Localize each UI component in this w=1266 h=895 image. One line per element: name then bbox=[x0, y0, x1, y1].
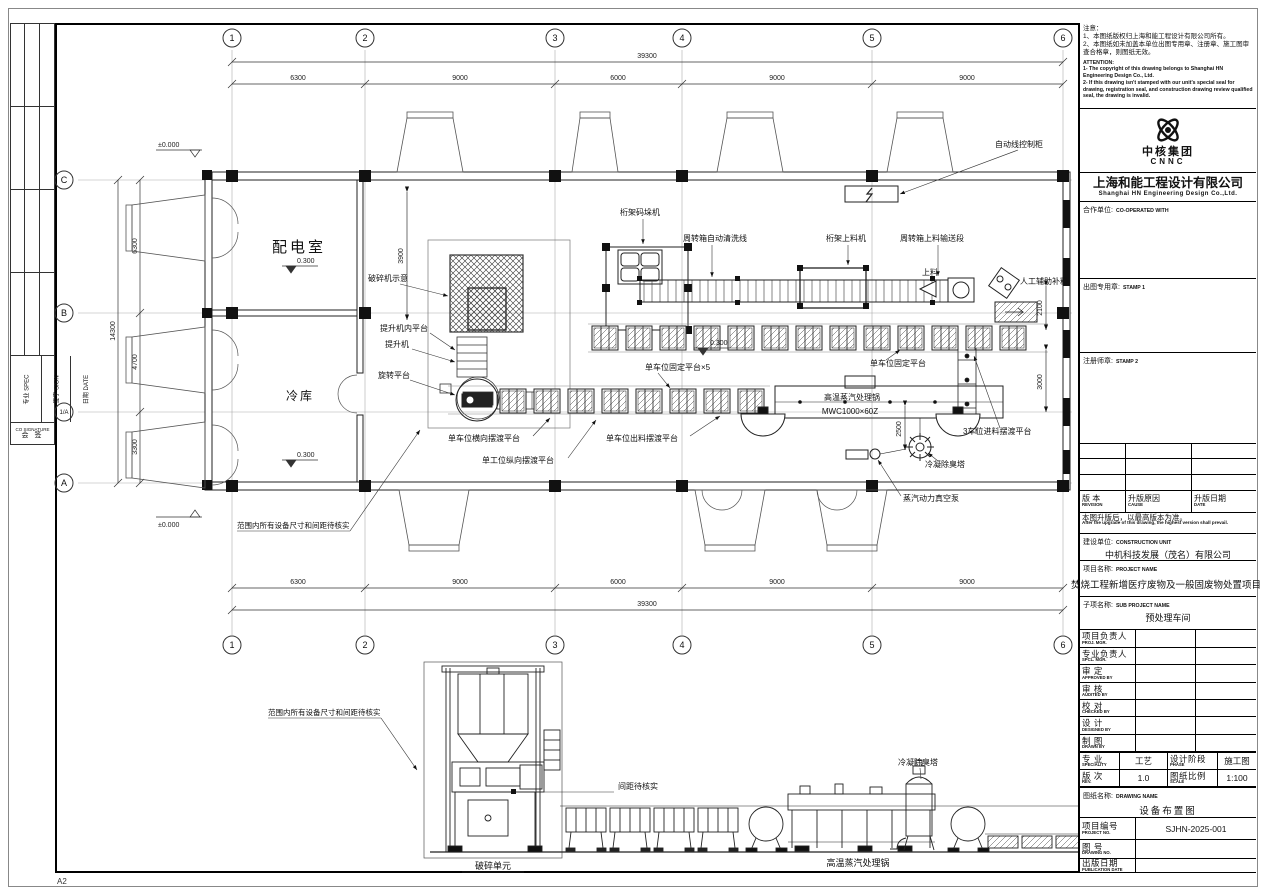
stamp1-label-cn: 出图专用章: bbox=[1083, 282, 1120, 292]
signature-header-row: 专业 SPEC 签字 SIGN 日期 DATE bbox=[11, 356, 54, 423]
level-text: ±0.000 bbox=[158, 142, 179, 149]
level-text: 0.300 bbox=[710, 340, 728, 347]
personnel-row-label: 专业负责人SPCL. MGR. bbox=[1080, 648, 1136, 665]
level-mark-cold: 0.300 bbox=[282, 452, 318, 467]
manual-refill-station bbox=[989, 268, 1037, 322]
lateral-ferry-turntable bbox=[456, 379, 498, 421]
grid-bubbles-left: C B 1/A A bbox=[55, 171, 73, 492]
label-truss-loader: 桁架上料机 bbox=[826, 233, 866, 243]
label-feed-ferry-3: 3车位进料摆渡平台 bbox=[963, 426, 1031, 436]
notes-cn-line2: 2、本图纸如未加盖本单位出图专用章、注册章、施工图审查合格章，则图纸无效。 bbox=[1083, 41, 1253, 57]
label-verify-note: 范围内所有设备尺寸和间距待核实 bbox=[237, 520, 350, 530]
personnel-row-label: 制 图DRAWN BY bbox=[1080, 735, 1136, 752]
label-rotating-platform: 旋转平台 bbox=[378, 370, 410, 380]
id-table: 项目编号PROJECT NO. SJHN-2025-001 图 号DRAWING… bbox=[1080, 818, 1256, 873]
label-elev-condenser: 冷凝除臭塔 bbox=[898, 757, 938, 767]
label-spacing-note: 间距待核实 bbox=[618, 781, 658, 791]
drawing-canvas: 1 2 3 4 5 6 1 2 3 4 5 6 C B 1/A A bbox=[0, 0, 1266, 895]
grid-bubble-label: 2 bbox=[362, 33, 367, 43]
coop-label-cn: 合作单位: bbox=[1083, 205, 1113, 215]
drawing-name-section: 图纸名称: DRAWING NAME 设备布置图 bbox=[1080, 788, 1256, 818]
dim-text: 14300 bbox=[110, 321, 117, 341]
label-elev-steam-pot: 高温蒸汽处理锅 bbox=[826, 857, 889, 868]
date-header: 日期 DATE bbox=[81, 374, 90, 403]
cnnc-logo-icon bbox=[1151, 114, 1185, 146]
dim-text: 3300 bbox=[132, 439, 139, 455]
personnel-row-label: 审 定APPROVED BY bbox=[1080, 665, 1136, 682]
grid-bubble-label: A bbox=[61, 478, 67, 488]
dim-text: 2100 bbox=[1037, 300, 1044, 316]
notes-en-line1: 1- The copyright of this drawing belongs… bbox=[1083, 66, 1253, 80]
dim-text: 9000 bbox=[452, 75, 468, 82]
project-no-value: SJHN-2025-001 bbox=[1136, 818, 1256, 840]
rev-value: 1.0 bbox=[1120, 770, 1168, 787]
speciality-label: 专 业SPECIALITY bbox=[1080, 753, 1120, 770]
revision-table: 版 本 REVISION 升版原因 CAUSE 升版日期 DATE bbox=[1080, 444, 1256, 513]
drawing-name-label-cn: 图纸名称: bbox=[1083, 791, 1113, 801]
notes-en-line2: 2- If this drawing isn't stamped with ou… bbox=[1083, 80, 1253, 100]
subproject-label-cn: 子项名称: bbox=[1083, 600, 1113, 610]
grid-bubbles-bottom: 1 2 3 4 5 6 bbox=[223, 636, 1072, 654]
conveyor-row-outfeed bbox=[448, 386, 770, 414]
elevation-right-platform bbox=[985, 834, 1088, 848]
grid-bubbles-top: 1 2 3 4 5 6 bbox=[223, 29, 1072, 47]
grid-bubble-label: 5 bbox=[869, 33, 874, 43]
stamp1-label-en: STAMP 1 bbox=[1123, 285, 1145, 291]
dimensions-bottom: 6300 9000 6000 9000 9000 39300 bbox=[228, 579, 1067, 614]
phase-value: 施工图 bbox=[1218, 753, 1256, 770]
drawing-sheet: 1 2 3 4 5 6 1 2 3 4 5 6 C B 1/A A bbox=[0, 0, 1266, 895]
grid-bubble-label: 3 bbox=[552, 33, 557, 43]
logo-en: CNNC bbox=[1150, 158, 1185, 167]
elevation-view bbox=[424, 662, 1090, 858]
dim-text: 39300 bbox=[637, 601, 657, 608]
level-text: ±0.000 bbox=[158, 522, 179, 529]
personnel-row-label: 设 计DESIGNED BY bbox=[1080, 717, 1136, 734]
notes-cn-title: 注意： bbox=[1083, 25, 1253, 33]
subproject-value: 预处理车间 bbox=[1080, 611, 1256, 624]
elevation-sphere-left bbox=[746, 807, 787, 852]
dimensions-top: 6300 9000 6000 9000 9000 39300 bbox=[228, 53, 1067, 88]
notes-en-title: ATTENTION: bbox=[1083, 60, 1253, 67]
logo-section: 中核集团 CNNC bbox=[1080, 109, 1256, 173]
date-en: DATE bbox=[1194, 503, 1256, 507]
dim-text: 9000 bbox=[959, 579, 975, 586]
signature-empty-row bbox=[11, 24, 54, 107]
control-cabinet bbox=[845, 186, 898, 202]
grid-bubble-label: B bbox=[61, 308, 67, 318]
dim-text: 9000 bbox=[769, 75, 785, 82]
label-lateral-ferry: 单车位横向摆渡平台 bbox=[448, 433, 520, 443]
coop-label-en: CO-OPERATED WITH bbox=[1116, 208, 1169, 214]
room-power-distribution: 配电室 bbox=[272, 239, 326, 256]
label-crushing-unit: 破碎单元 bbox=[475, 860, 511, 871]
dim-text: 6300 bbox=[290, 579, 306, 586]
grid-bubble-label: C bbox=[61, 175, 68, 185]
project-no-label: 项目编号PROJECT NO. bbox=[1080, 818, 1136, 840]
drawing-no-value bbox=[1136, 840, 1256, 859]
dim-text: 4700 bbox=[132, 354, 139, 370]
grid-bubble-label: 6 bbox=[1060, 33, 1065, 43]
grid-bubble-label: 4 bbox=[679, 640, 684, 650]
dimensions-left: 6300 4700 3300 14300 bbox=[110, 176, 144, 487]
level-text: 0.300 bbox=[297, 258, 315, 265]
project-label-cn: 项目名称: bbox=[1083, 564, 1113, 574]
personnel-table: 项目负责人PROJ. MGR. 专业负责人SPCL. MGR. 审 定APPRO… bbox=[1080, 630, 1256, 753]
elevation-condenser-tower bbox=[890, 760, 934, 850]
grid-bubble-label: 1 bbox=[229, 33, 234, 43]
label-vacuum-pump: 蒸汽动力真空泵 bbox=[903, 493, 959, 503]
dim-text: 3000 bbox=[1037, 374, 1044, 390]
label-hoist-platform: 提升机内平台 bbox=[380, 323, 428, 333]
co-signature-cn: 会 签 bbox=[22, 432, 44, 439]
upgrade-note-section: 本图升版后，以最高版本为准。 After the upgrade of this… bbox=[1080, 513, 1256, 534]
scale-value: 1:100 bbox=[1218, 770, 1256, 787]
drawing-name-value: 设备布置图 bbox=[1080, 803, 1256, 817]
grid-bubble-label: 6 bbox=[1060, 640, 1065, 650]
stamp2-label-en: STAMP 2 bbox=[1116, 359, 1138, 365]
dim-text: 6300 bbox=[290, 75, 306, 82]
grid-bubble-label: 1 bbox=[229, 640, 234, 650]
company-section: 上海和能工程设计有限公司 Shanghai HN Engineering Des… bbox=[1080, 173, 1256, 202]
label-truss-palletizer: 桁架码垛机 bbox=[620, 207, 660, 217]
co-operated-section: 合作单位: CO-OPERATED WITH bbox=[1080, 202, 1256, 279]
sheet-format-label: A2 bbox=[57, 877, 67, 886]
conveyor-row-fixed-platforms bbox=[588, 324, 1048, 352]
label-fixed-platform-x5: 单车位固定平台×5 bbox=[645, 362, 711, 372]
pub-date-value bbox=[1136, 859, 1256, 873]
label-control-cabinet: 自动线控制柜 bbox=[995, 139, 1043, 149]
dim-text: 9000 bbox=[769, 579, 785, 586]
level-mark-zero-bottom: ±0.000 bbox=[156, 510, 202, 529]
cause-en: CAUSE bbox=[1128, 503, 1191, 507]
construction-unit-section: 建设单位: CONSTRUCTION UNIT 中机科技发展（茂名）有限公司 bbox=[1080, 534, 1256, 561]
signature-empty-row bbox=[11, 107, 54, 190]
company-name-en: Shanghai HN Engineering Design Co.,Ltd. bbox=[1099, 191, 1238, 198]
dim-text: 9000 bbox=[959, 75, 975, 82]
label-feeding: 上料 bbox=[922, 267, 938, 277]
label-discharge-ferry: 单车位出料摆渡平台 bbox=[606, 433, 678, 443]
construction-label-en: CONSTRUCTION UNIT bbox=[1116, 540, 1171, 546]
dim-text: 39300 bbox=[637, 53, 657, 60]
spec-header: 专业 SPEC bbox=[22, 374, 31, 404]
drawing-no-label: 图 号DRAWING NO. bbox=[1080, 840, 1136, 859]
rev-en: REVISION bbox=[1082, 503, 1125, 507]
level-mark-zero-top: ±0.000 bbox=[156, 142, 202, 157]
project-name-value: 焚烧工程新增医疗废物及一般固废物处置项目 bbox=[1071, 577, 1256, 591]
grid-bubble-label: 2 bbox=[362, 640, 367, 650]
level-mark-power: 0.300 bbox=[282, 258, 318, 273]
construction-unit-value: 中机科技发展（茂名）有限公司 bbox=[1080, 548, 1256, 561]
dim-text: 6000 bbox=[610, 579, 626, 586]
label-manual-refill: 人工辅助补料 bbox=[1020, 276, 1068, 286]
pub-date-label: 出版日期PUBLICATION DATE bbox=[1080, 859, 1136, 873]
drawing-name-label-en: DRAWING NAME bbox=[1116, 794, 1158, 800]
elevation-steam-pot bbox=[788, 784, 935, 851]
level-text: 0.300 bbox=[297, 452, 315, 459]
personnel-row-label: 项目负责人PROJ. MGR. bbox=[1080, 630, 1136, 647]
project-name-section: 项目名称: PROJECT NAME 焚烧工程新增医疗废物及一般固废物处置项目 bbox=[1080, 561, 1256, 598]
grid-bubble-label: 4 bbox=[679, 33, 684, 43]
construction-label-cn: 建设单位: bbox=[1083, 537, 1113, 547]
upgrade-note-en: After the upgrade of this drawing, the h… bbox=[1082, 521, 1254, 526]
dim-text: 9000 bbox=[452, 579, 468, 586]
dim-text: 2500 bbox=[896, 421, 903, 437]
signature-strip: 专业 SPEC 签字 SIGN 日期 DATE CO SIGNATURE 会 签 bbox=[10, 23, 55, 445]
stamp2-section: 注册师章: STAMP 2 bbox=[1080, 353, 1256, 444]
scale-label: 图纸比例SCALE bbox=[1168, 770, 1218, 787]
project-label-en: PROJECT NAME bbox=[1116, 567, 1157, 573]
speciality-table: 专 业SPECIALITY 工艺 设计阶段PHASE 施工图 版 次REV. 1… bbox=[1080, 753, 1256, 788]
label-crusher-schematic: 破碎机示意 bbox=[368, 273, 408, 283]
label-elev-verify-note: 范围内所有设备尺寸和间距待核实 bbox=[268, 707, 381, 717]
label-feed-conveyor: 周转箱上料输送段 bbox=[900, 233, 964, 243]
elevation-sphere-right bbox=[948, 807, 989, 852]
grid-bubble-label: 3 bbox=[552, 640, 557, 650]
phase-label: 设计阶段PHASE bbox=[1168, 753, 1218, 770]
dim-text: 6000 bbox=[610, 75, 626, 82]
vacuum-pump-plan bbox=[846, 449, 906, 459]
signature-empty-row bbox=[11, 190, 54, 273]
notes-section: 注意： 1、本图纸版权归上海和能工程设计有限公司所有。 2、本图纸如未加盖本单位… bbox=[1080, 23, 1256, 109]
label-longitudinal-ferry: 单工位纵向摆渡平台 bbox=[482, 455, 554, 465]
company-name-cn: 上海和能工程设计有限公司 bbox=[1093, 176, 1243, 190]
label-steam-pot: 高温蒸汽处理锅 bbox=[824, 392, 880, 402]
label-condenser-tower: 冷凝除臭塔 bbox=[925, 459, 965, 469]
personnel-row-label: 校 对CHECKED BY bbox=[1080, 700, 1136, 717]
stamp2-label-cn: 注册师章: bbox=[1083, 356, 1113, 366]
personnel-row-label: 审 核AUDITED BY bbox=[1080, 683, 1136, 700]
rev-label: 版 次REV. bbox=[1080, 770, 1120, 787]
revision-header-rev: 版 本 REVISION bbox=[1080, 491, 1126, 512]
label-steam-pot-model: MWC1000×60Z bbox=[822, 407, 878, 416]
co-signature-cell: CO SIGNATURE 会 签 bbox=[11, 423, 54, 444]
sign-header: 签字 SIGN bbox=[52, 375, 61, 403]
crusher-tower-elevation bbox=[442, 666, 560, 852]
room-cold-storage: 冷库 bbox=[286, 388, 314, 403]
subproject-section: 子项名称: SUB PROJECT NAME 预处理车间 bbox=[1080, 597, 1256, 630]
label-hoist: 提升机 bbox=[385, 339, 409, 349]
grid-bubble-label: 5 bbox=[869, 640, 874, 650]
dim-text: 3900 bbox=[398, 248, 405, 264]
revision-header-cause: 升版原因 CAUSE bbox=[1126, 491, 1192, 512]
title-block: 注意： 1、本图纸版权归上海和能工程设计有限公司所有。 2、本图纸如未加盖本单位… bbox=[1078, 23, 1256, 873]
subproject-label-en: SUB PROJECT NAME bbox=[1116, 603, 1170, 609]
signature-empty-row bbox=[11, 273, 54, 356]
revision-header-date: 升版日期 DATE bbox=[1192, 491, 1256, 512]
label-fixed-platform: 单车位固定平台 bbox=[870, 358, 926, 368]
stamp1-section: 出图专用章: STAMP 1 bbox=[1080, 279, 1256, 353]
label-washing-line: 周转箱自动清洗线 bbox=[683, 233, 747, 243]
speciality-value: 工艺 bbox=[1120, 753, 1168, 770]
